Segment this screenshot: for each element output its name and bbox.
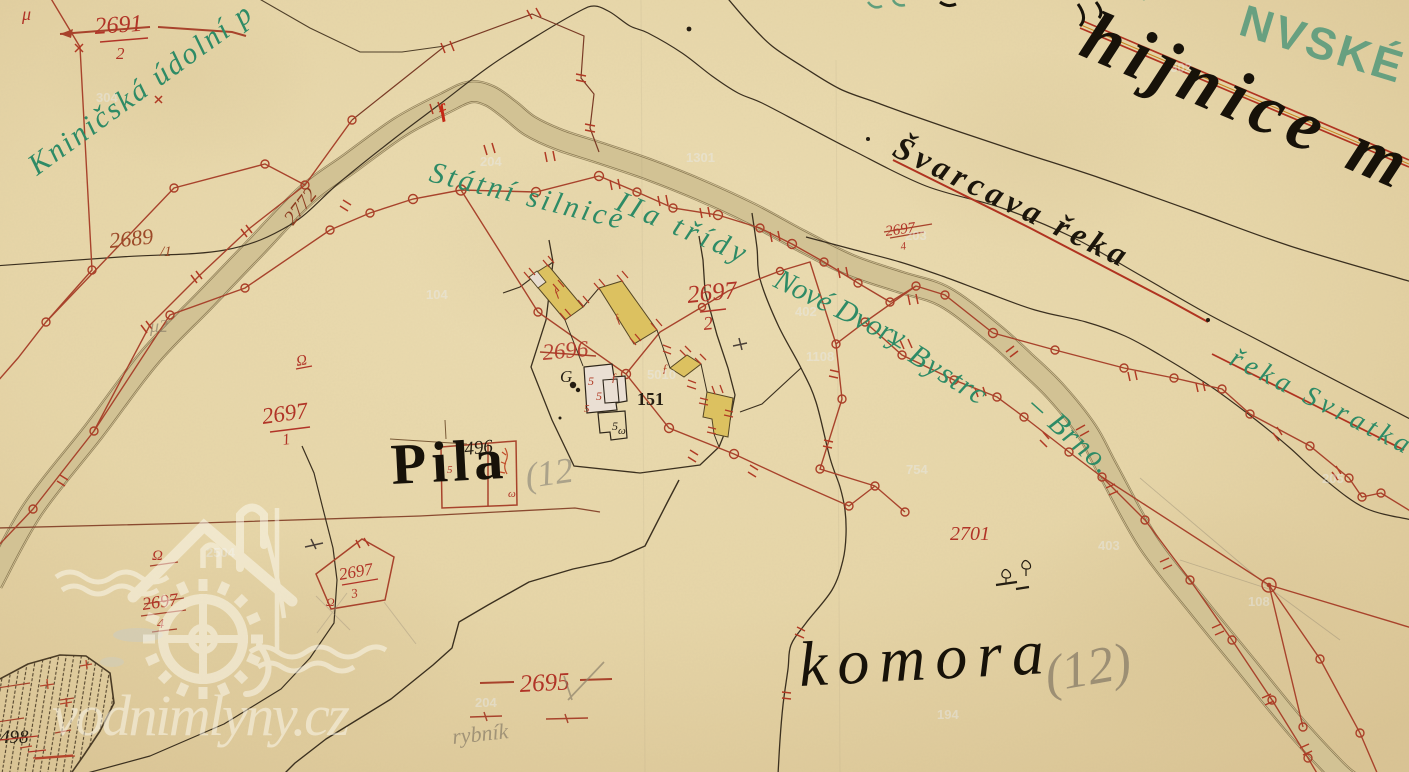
svg-text:194: 194 — [937, 707, 959, 722]
svg-text:108: 108 — [1248, 594, 1270, 609]
svg-text:ω: ω — [618, 425, 626, 437]
svg-text:496: 496 — [463, 436, 494, 460]
svg-text:2696: 2696 — [541, 336, 590, 365]
svg-text:2689: 2689 — [108, 224, 154, 253]
svg-text:2695: 2695 — [519, 668, 570, 698]
svg-text:vodnimlyny.cz: vodnimlyny.cz — [52, 683, 350, 748]
svg-text:1301: 1301 — [686, 150, 715, 165]
svg-text:5: 5 — [584, 403, 590, 415]
svg-text:205: 205 — [1322, 471, 1344, 486]
svg-text:5010: 5010 — [647, 367, 676, 382]
svg-text:2691: 2691 — [94, 11, 144, 40]
svg-text:5: 5 — [447, 464, 453, 476]
svg-text:754: 754 — [906, 462, 928, 477]
svg-text:2: 2 — [116, 44, 125, 63]
svg-text:μ2: μ2 — [149, 316, 168, 336]
svg-text:204: 204 — [480, 154, 502, 169]
svg-text:204: 204 — [475, 695, 497, 710]
svg-text:μ: μ — [21, 4, 31, 24]
svg-text:403: 403 — [1098, 538, 1120, 553]
svg-text:(12: (12 — [523, 450, 576, 496]
svg-text:/1: /1 — [159, 244, 172, 260]
svg-text:1108: 1108 — [806, 349, 834, 364]
svg-text:ω: ω — [508, 488, 516, 500]
svg-text:104: 104 — [426, 287, 448, 302]
svg-text:ƒ: ƒ — [611, 370, 617, 384]
svg-text:2697: 2697 — [686, 277, 740, 309]
svg-text:5: 5 — [596, 389, 602, 403]
svg-text:151: 151 — [637, 389, 664, 409]
svg-text:2701: 2701 — [950, 523, 990, 545]
svg-text:5: 5 — [588, 374, 594, 388]
